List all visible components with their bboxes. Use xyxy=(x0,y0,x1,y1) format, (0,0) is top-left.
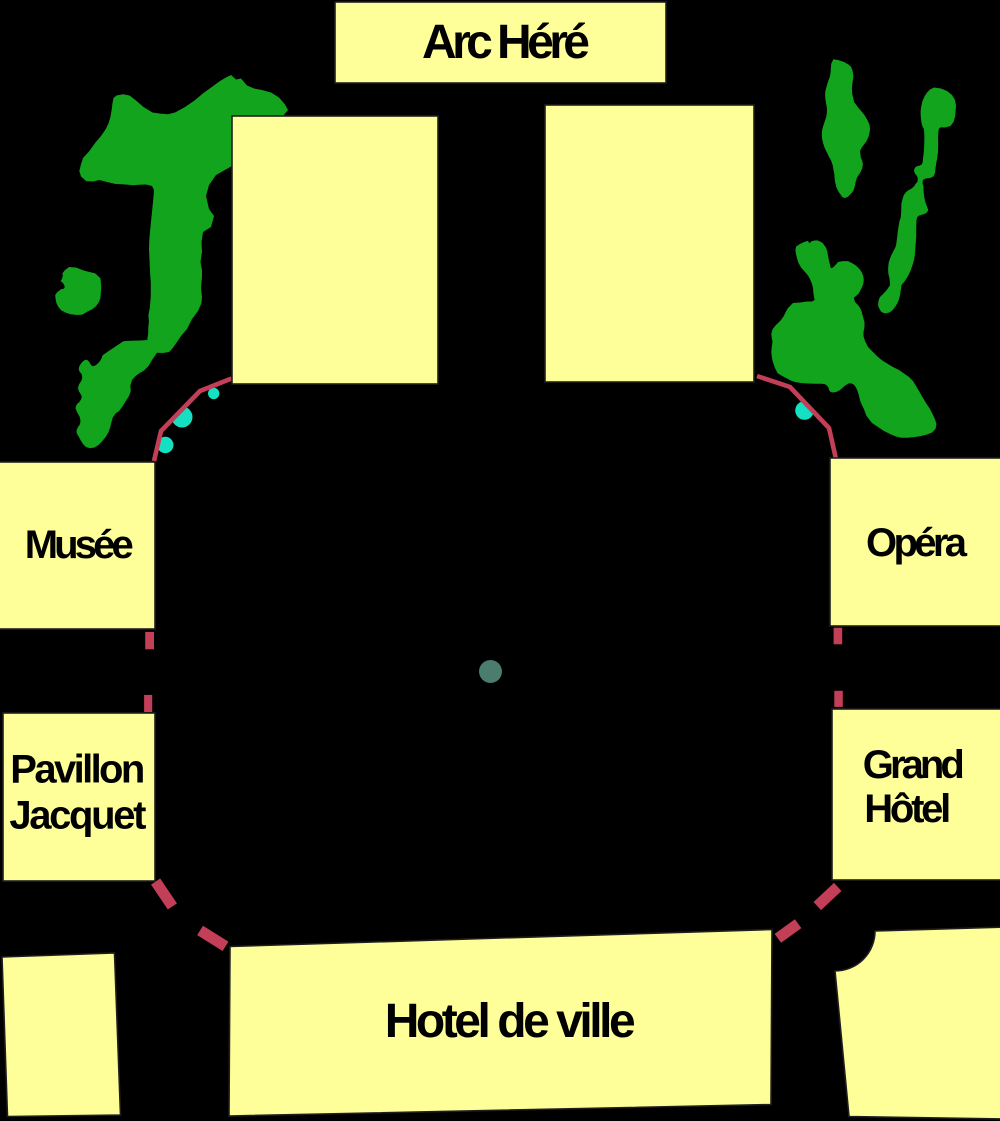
svg-text:Hotel de ville: Hotel de ville xyxy=(385,995,636,1048)
svg-text:Musée: Musée xyxy=(25,523,134,567)
svg-text:Opéra: Opéra xyxy=(866,521,968,565)
svg-text:Jacquet: Jacquet xyxy=(9,793,146,837)
svg-text:Pavillon: Pavillon xyxy=(10,748,145,792)
svg-text:Grand: Grand xyxy=(863,743,965,787)
svg-text:Arc Héré: Arc Héré xyxy=(422,16,590,69)
svg-text:Hôtel: Hôtel xyxy=(864,787,951,831)
